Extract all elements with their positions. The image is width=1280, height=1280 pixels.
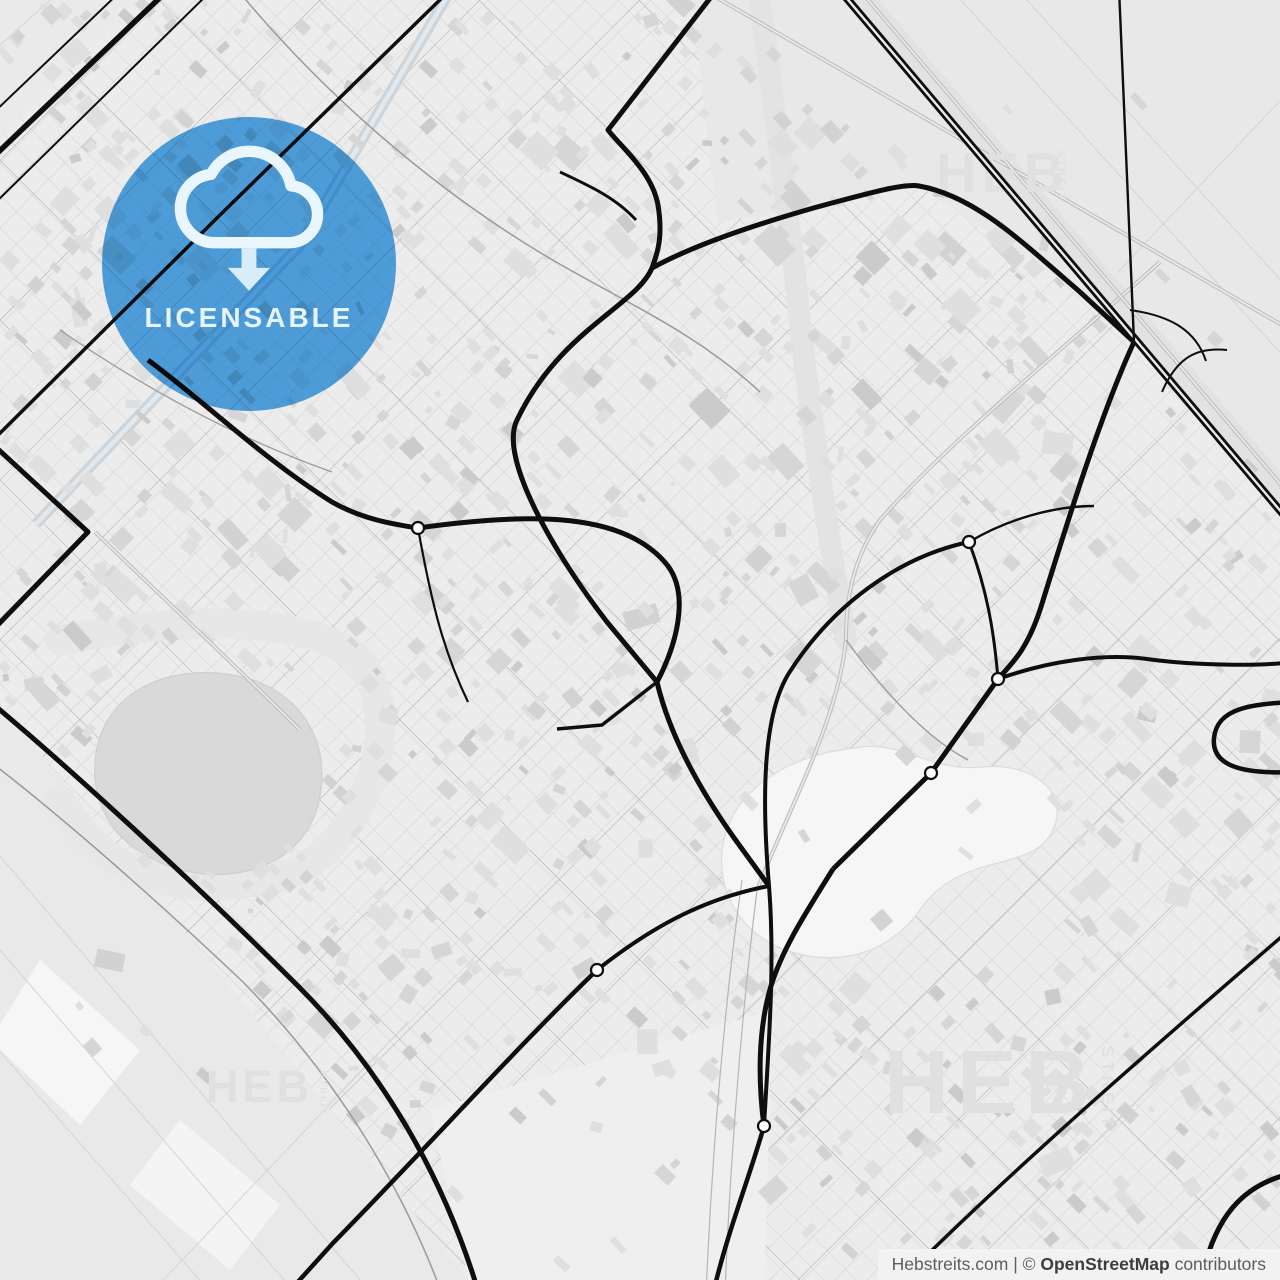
attribution-separator: | ©: [1008, 1249, 1040, 1280]
map-poster: HEBSTREITHEBSTREITHEBSTREIT LICENSABLE H…: [0, 0, 1280, 1280]
watermark-text: HEB: [884, 1033, 1098, 1133]
watermark-text: STREIT: [1055, 150, 1067, 201]
roundabout: [992, 673, 1004, 685]
roundabout: [963, 536, 975, 548]
watermark-text: HEB: [206, 1061, 313, 1112]
watermark-text: HEB: [936, 141, 1069, 204]
attribution-bar: Hebstreits.com | © OpenStreetMap contrib…: [878, 1249, 1280, 1280]
attribution-site: Hebstreits.com: [892, 1249, 1009, 1280]
roundabout: [412, 522, 424, 534]
roundabout: [758, 1120, 770, 1132]
attribution-suffix: contributors: [1170, 1249, 1266, 1280]
watermark-text: STREIT: [318, 1072, 328, 1116]
attribution-brand: OpenStreetMap: [1040, 1249, 1169, 1280]
licensable-badge: [102, 117, 396, 411]
roundabout: [925, 767, 937, 779]
roundabout: [591, 964, 603, 976]
